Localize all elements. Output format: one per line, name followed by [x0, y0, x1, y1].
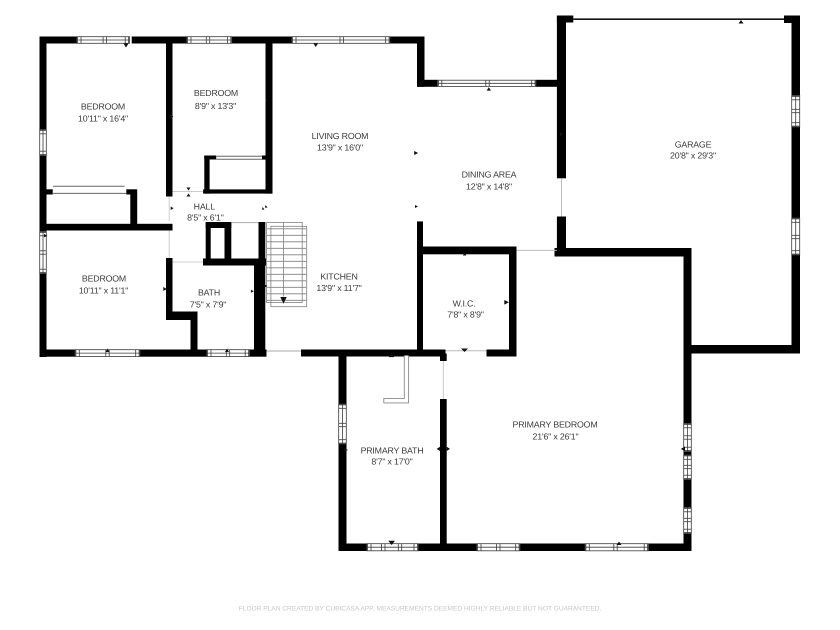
svg-text:20'8" x 29'3": 20'8" x 29'3": [670, 150, 716, 160]
svg-text:10'11" x 16'4": 10'11" x 16'4": [78, 114, 128, 124]
svg-text:KITCHEN: KITCHEN: [320, 271, 357, 281]
svg-text:LIVING ROOM: LIVING ROOM: [312, 131, 369, 141]
svg-text:BEDROOM: BEDROOM: [82, 273, 126, 283]
svg-text:BEDROOM: BEDROOM: [194, 88, 238, 98]
svg-text:8'7" x 17'0": 8'7" x 17'0": [371, 457, 412, 467]
svg-text:W.I.C.: W.I.C.: [453, 298, 476, 308]
svg-text:PRIMARY BATH: PRIMARY BATH: [361, 445, 424, 455]
svg-text:7'8" x 8'9": 7'8" x 8'9": [447, 310, 484, 320]
svg-text:21'6" x 26'1": 21'6" x 26'1": [533, 431, 579, 441]
svg-text:7'5" x 7'9": 7'5" x 7'9": [190, 299, 227, 309]
svg-text:10'11" x 11'1": 10'11" x 11'1": [79, 285, 128, 295]
svg-text:8'5" x 6'1": 8'5" x 6'1": [187, 213, 224, 223]
svg-text:13'9" x 11'7": 13'9" x 11'7": [316, 283, 361, 293]
svg-text:HALL: HALL: [194, 201, 216, 211]
svg-text:FLOOR PLAN CREATED BY CUBICASA: FLOOR PLAN CREATED BY CUBICASA APP. MEAS…: [239, 606, 602, 613]
svg-text:GARAGE: GARAGE: [675, 139, 712, 149]
svg-text:BEDROOM: BEDROOM: [81, 101, 125, 111]
svg-text:PRIMARY BEDROOM: PRIMARY BEDROOM: [513, 419, 598, 429]
svg-text:BATH: BATH: [198, 287, 220, 297]
svg-text:13'9" x 16'0": 13'9" x 16'0": [317, 142, 363, 152]
svg-text:12'8" x 14'8": 12'8" x 14'8": [466, 181, 512, 191]
svg-text:DINING AREA: DINING AREA: [462, 169, 517, 179]
svg-text:8'9" x 13'3": 8'9" x 13'3": [195, 101, 236, 111]
